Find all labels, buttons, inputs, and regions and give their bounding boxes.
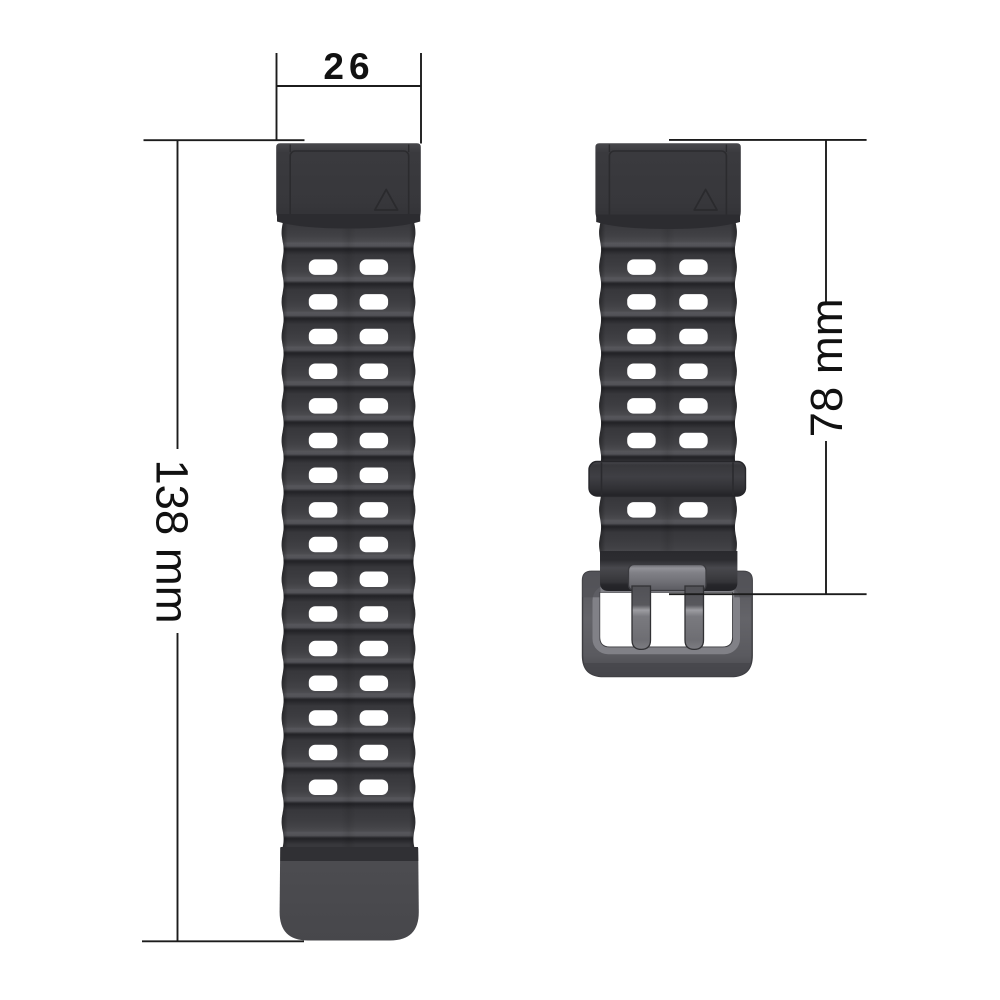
svg-text:26: 26 [323,46,374,87]
svg-text:138 mm: 138 mm [146,459,197,623]
svg-text:78 mm: 78 mm [801,298,852,437]
